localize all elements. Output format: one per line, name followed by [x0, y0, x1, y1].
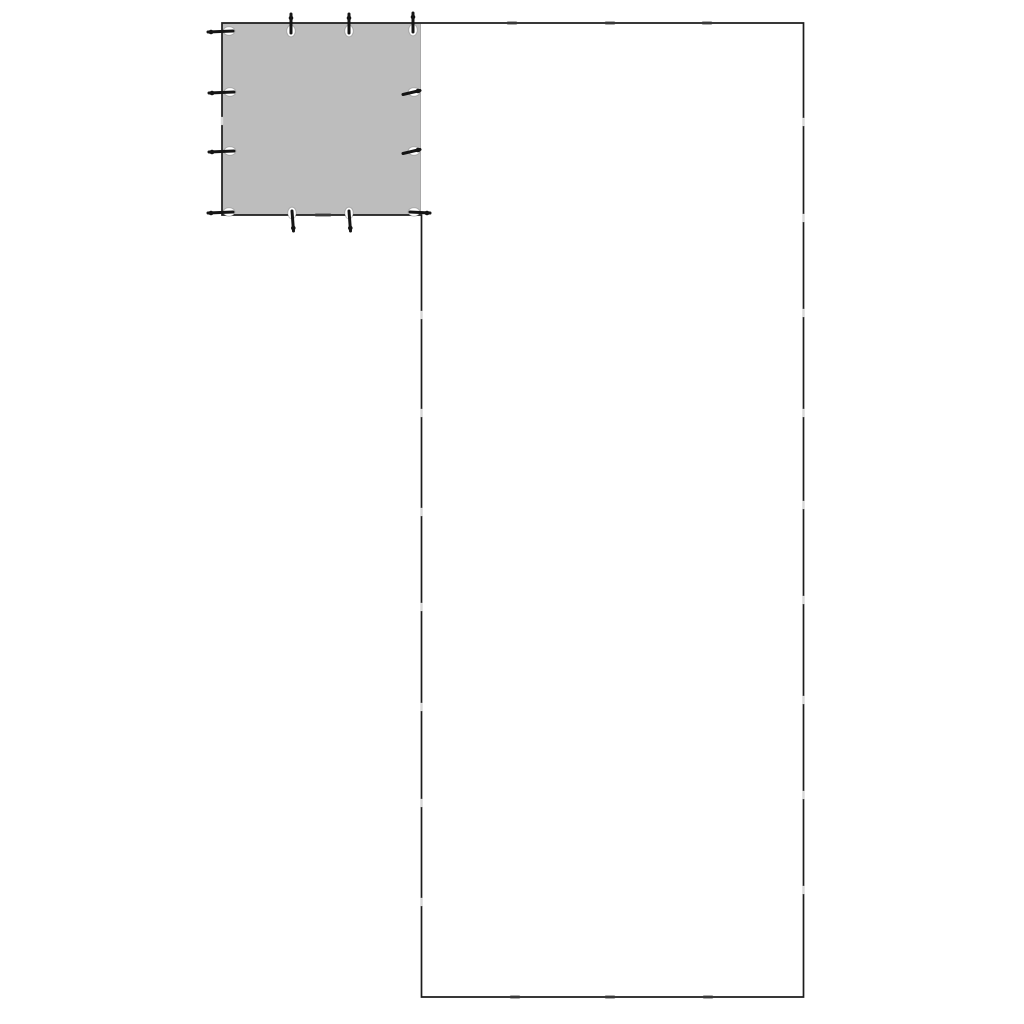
product-diagram-canvas — [0, 0, 1024, 1024]
tarp-peg-head — [416, 89, 421, 94]
tarp-peg-head — [210, 91, 215, 96]
tarp-peg-head — [348, 226, 353, 231]
tarp-peg-head — [416, 148, 421, 153]
tarp-peg-head — [289, 16, 294, 21]
tarp-peg-head — [347, 16, 352, 21]
tarp-peg-head — [425, 211, 430, 216]
tarp-peg-head — [209, 211, 214, 216]
tarp-peg-head — [209, 30, 214, 35]
tarp-peg-head — [210, 150, 215, 155]
tarp-peg-head — [291, 226, 296, 231]
tarp-peg-head — [411, 15, 416, 20]
diagram-background — [0, 0, 1024, 1024]
tarp-cover — [223, 24, 421, 216]
l-shaped-enclosure-with-tarp-diagram — [0, 0, 1024, 1024]
